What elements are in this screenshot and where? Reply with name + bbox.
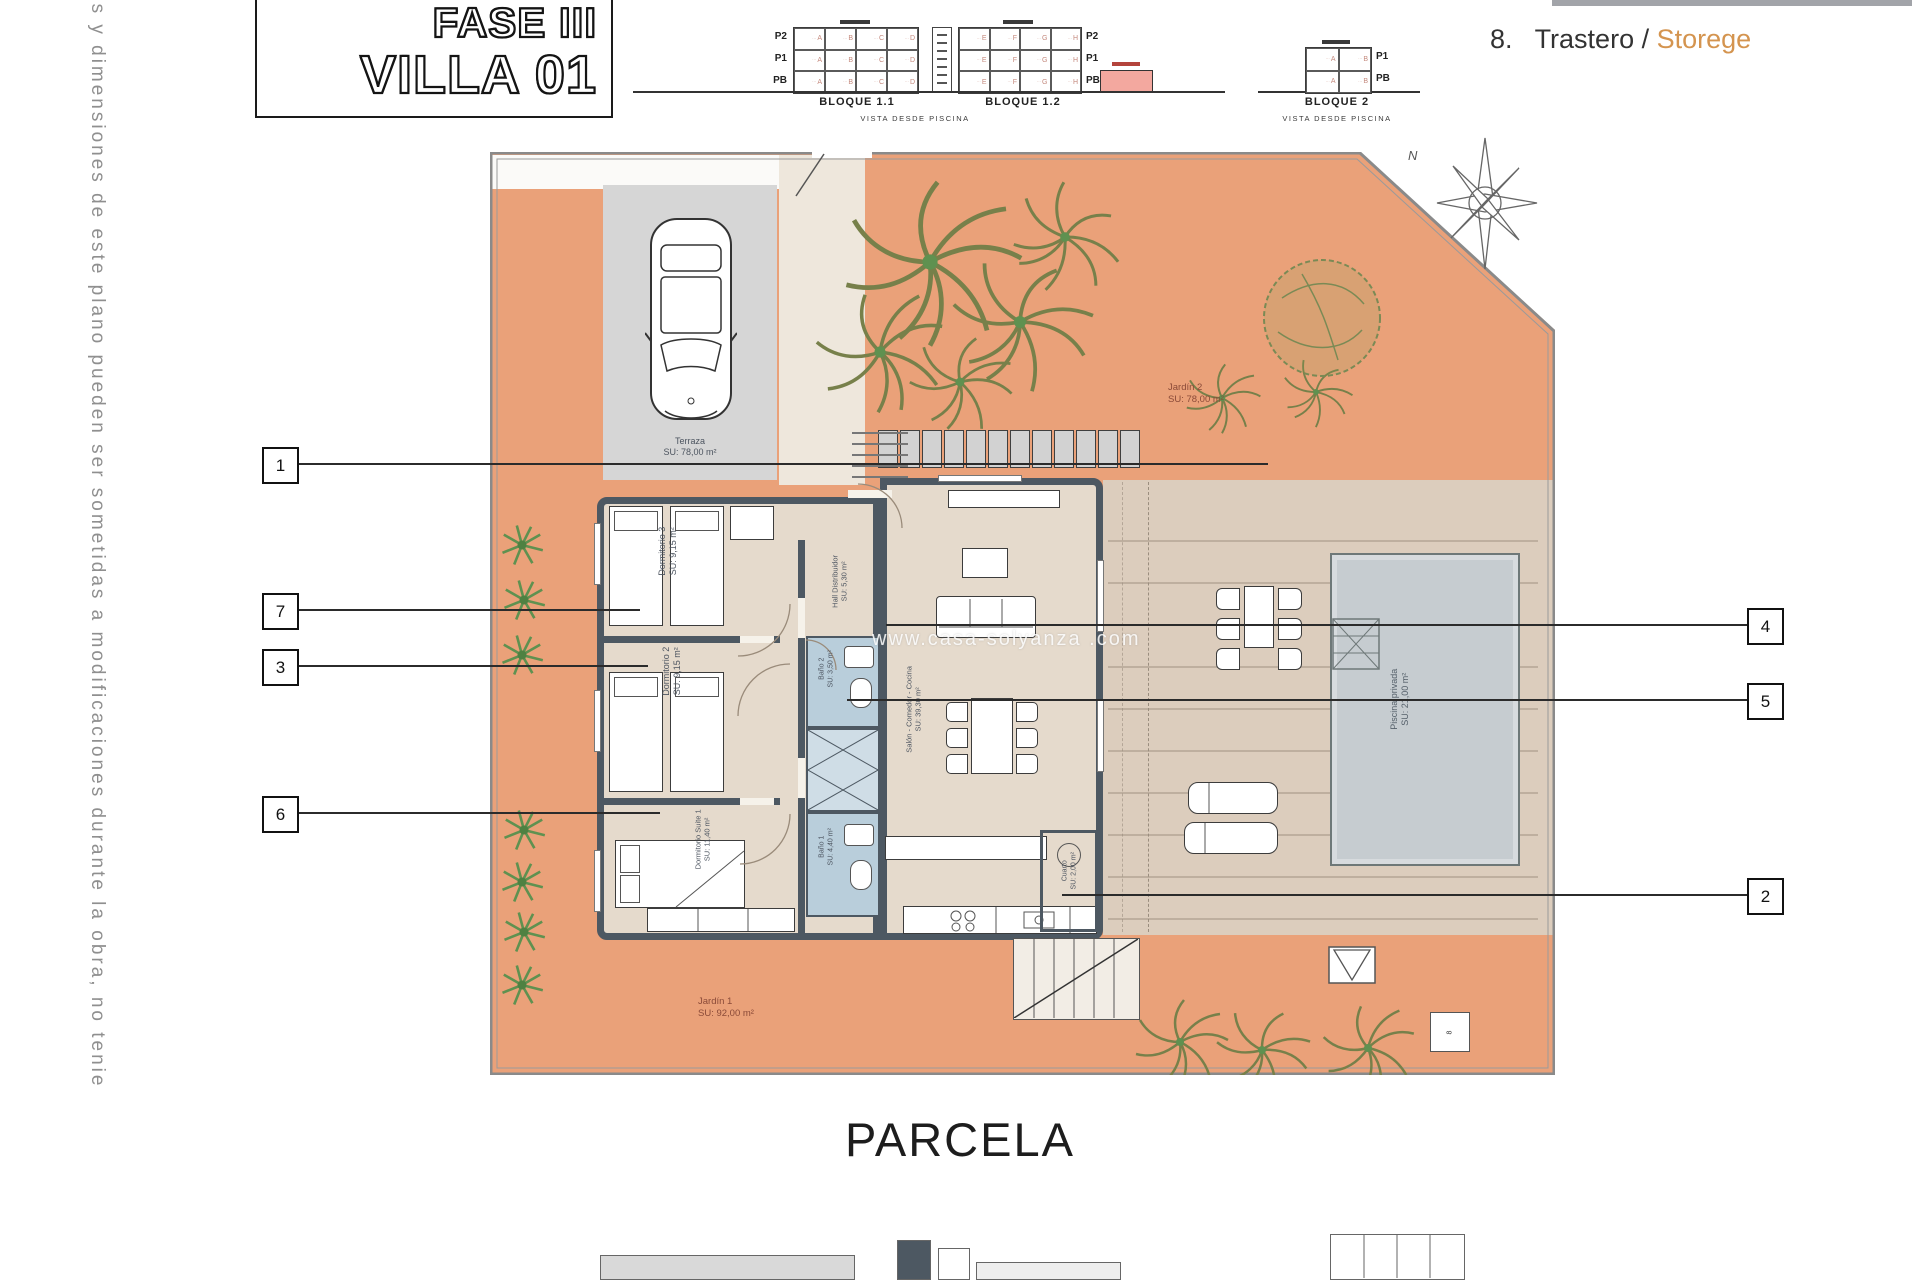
cropped-drawing-fragment bbox=[938, 1248, 970, 1280]
chair bbox=[1278, 648, 1302, 670]
bathroom-1 bbox=[806, 812, 880, 917]
chair bbox=[1278, 618, 1302, 640]
callout-7: 7 bbox=[262, 593, 299, 630]
sun-lounger bbox=[1184, 822, 1278, 854]
legend-name-en: Storege bbox=[1657, 24, 1752, 54]
bloque2-name: BLOQUE 2 bbox=[1287, 96, 1387, 108]
leader-line-5 bbox=[847, 699, 1747, 701]
callout-5: 5 bbox=[1747, 683, 1784, 720]
door-opening bbox=[798, 598, 805, 638]
bloque12-grid: EFGHEFGHEFGH bbox=[958, 27, 1082, 94]
window bbox=[594, 850, 601, 912]
bench-closet bbox=[647, 908, 795, 932]
unit-cell: D bbox=[887, 50, 918, 72]
level-label: PB bbox=[763, 75, 787, 86]
cropped-drawing-fragment bbox=[600, 1255, 855, 1280]
dormitorio2-label: Dormitorio 2SU: 9,15 m² bbox=[661, 616, 684, 726]
callout-4: 4 bbox=[1747, 608, 1784, 645]
shower-symbol bbox=[1328, 946, 1376, 984]
door-opening bbox=[740, 798, 774, 805]
window bbox=[594, 690, 601, 752]
legend-number: 8. bbox=[1490, 24, 1513, 54]
north-compass bbox=[1425, 136, 1545, 271]
window bbox=[1097, 700, 1104, 772]
ground-line bbox=[633, 91, 1225, 93]
bloque12-roof-label bbox=[1003, 20, 1033, 24]
unit-cell: B bbox=[1339, 48, 1372, 71]
parcela-title: PARCELA bbox=[790, 1112, 1130, 1167]
unit-cell: A bbox=[1306, 48, 1339, 71]
unit-cell: A bbox=[794, 71, 825, 93]
bloque11-name: BLOQUE 1.1 bbox=[807, 96, 907, 108]
callout-3: 3 bbox=[262, 649, 299, 686]
jardin1-label: Jardín 1SU: 92,00 m² bbox=[698, 996, 754, 1021]
legend-item-8: 8. Trastero / Storege bbox=[1490, 24, 1751, 55]
unit-cell: F bbox=[990, 28, 1021, 50]
sun-lounger bbox=[1188, 782, 1278, 814]
unit-cell: A bbox=[794, 28, 825, 50]
suite1-label: Dormitorio Suite 1SU: 11,40 m² bbox=[694, 779, 713, 899]
leader-line-1 bbox=[295, 463, 1268, 465]
unit-cell: D bbox=[887, 28, 918, 50]
bathroom-2 bbox=[806, 636, 880, 728]
unit-cell: B bbox=[825, 71, 856, 93]
chair bbox=[1278, 588, 1302, 610]
entry-door-opening bbox=[848, 490, 892, 498]
unit-cell: H bbox=[1051, 28, 1082, 50]
bloque2-caption: VISTA DESDE PISCINA bbox=[1267, 114, 1407, 123]
leader-line-2 bbox=[1062, 894, 1747, 896]
villa-title: VILLA 01 bbox=[257, 48, 597, 102]
watermark: www.casa-solyanza .com bbox=[872, 628, 1141, 651]
level-label: P2 bbox=[1086, 31, 1098, 42]
coffee-table bbox=[962, 548, 1008, 578]
chair bbox=[1216, 648, 1240, 670]
cropped-drawing-fragment bbox=[1330, 1234, 1465, 1280]
unit-cell: G bbox=[1020, 28, 1051, 50]
level-label: PB bbox=[1376, 73, 1390, 84]
entry-steps bbox=[852, 432, 908, 478]
level-label: P2 bbox=[763, 31, 787, 42]
unit-cell: C bbox=[856, 28, 887, 50]
unit-cell: E bbox=[959, 28, 990, 50]
unit-cell: E bbox=[959, 50, 990, 72]
bed bbox=[609, 506, 663, 626]
unit-cell: H bbox=[1051, 50, 1082, 72]
leader-line-6 bbox=[295, 812, 660, 814]
level-label: P1 bbox=[1086, 53, 1098, 64]
window bbox=[938, 475, 1022, 482]
outdoor-table bbox=[1244, 586, 1274, 648]
hall-label: Hall DistribuidorSU: 5,30 m² bbox=[831, 536, 850, 626]
chair bbox=[946, 754, 968, 774]
phase-title: FASE III bbox=[257, 2, 597, 44]
leader-line-3 bbox=[295, 665, 648, 667]
unit-cell: F bbox=[990, 71, 1021, 93]
unit-cell: G bbox=[1020, 50, 1051, 72]
unit-cell: B bbox=[1339, 71, 1372, 94]
unit-cell: A bbox=[1306, 71, 1339, 94]
floor-plan-sheet: es y dimensiones de este plano pueden se… bbox=[0, 0, 1920, 1280]
wardrobe bbox=[730, 506, 774, 540]
stair-core bbox=[932, 27, 952, 92]
unit-cell: F bbox=[990, 50, 1021, 72]
bano1-label: Baño 1SU: 4,40 m² bbox=[818, 817, 836, 877]
cropped-header-bar bbox=[1552, 0, 1912, 6]
garden-stairs bbox=[1013, 938, 1140, 1020]
level-label: P1 bbox=[763, 53, 787, 64]
bloque12-name: BLOQUE 1.2 bbox=[973, 96, 1073, 108]
chair bbox=[1016, 728, 1038, 748]
jardin2-label: Jardín 2SU: 78,00 m² bbox=[1168, 382, 1224, 407]
unit-cell: C bbox=[856, 71, 887, 93]
callout-6: 6 bbox=[262, 796, 299, 833]
unit-cell: C bbox=[856, 50, 887, 72]
chair bbox=[1216, 618, 1240, 640]
level-label: PB bbox=[1086, 75, 1100, 86]
bano2-label: Baño 2SU: 3,50 m² bbox=[818, 639, 836, 699]
bloque2-roof-label bbox=[1322, 40, 1350, 44]
door-opening bbox=[798, 758, 805, 798]
highlighted-villa-cell bbox=[1100, 70, 1153, 92]
sideboard bbox=[948, 490, 1060, 508]
dining-table bbox=[971, 698, 1013, 774]
salon-label: Salón - Comedor - CocinaSU: 39,30 m² bbox=[905, 634, 924, 784]
bloque2-grid: ABAB bbox=[1305, 47, 1372, 94]
bloque1-caption: VISTA DESDE PISCINA bbox=[845, 114, 985, 123]
double-bed bbox=[615, 840, 745, 908]
leader-line-7 bbox=[295, 609, 640, 611]
storage-marker: 8 bbox=[1430, 1012, 1470, 1052]
unit-cell: A bbox=[794, 50, 825, 72]
north-label: N bbox=[1408, 148, 1417, 163]
bloque11-roof-label bbox=[840, 20, 870, 24]
unit-cell: E bbox=[959, 71, 990, 93]
cuarto-label: CuartoSU: 2,00 m² bbox=[1061, 841, 1079, 901]
legend-name-es: Trastero bbox=[1535, 24, 1635, 54]
kitchen-island bbox=[885, 836, 1047, 860]
unit-cell: G bbox=[1020, 71, 1051, 93]
chair bbox=[1016, 702, 1038, 722]
door-opening bbox=[740, 636, 774, 643]
wardrobe bbox=[806, 728, 880, 812]
margin-disclaimer-text: es y dimensiones de este plano pueden se… bbox=[86, 0, 108, 1280]
terrace-label: TerrazaSU: 78,00 m² bbox=[640, 436, 740, 459]
unit-cell: D bbox=[887, 71, 918, 93]
dormitorio3-label: Dormitorio 3SU: 9,15 m² bbox=[657, 496, 680, 606]
chair bbox=[946, 702, 968, 722]
callout-2: 2 bbox=[1747, 878, 1784, 915]
highlight-label-bar bbox=[1112, 62, 1140, 66]
unit-cell: H bbox=[1051, 71, 1082, 93]
level-label: P1 bbox=[1376, 51, 1388, 62]
title-block: FASE III VILLA 01 bbox=[255, 0, 613, 118]
chair bbox=[946, 728, 968, 748]
bloque11-grid: ABCDABCDABCD bbox=[793, 27, 919, 94]
cropped-drawing-fragment bbox=[897, 1240, 931, 1280]
callout-1: 1 bbox=[262, 447, 299, 484]
chair bbox=[1016, 754, 1038, 774]
bed bbox=[609, 672, 663, 792]
window bbox=[594, 523, 601, 585]
chair bbox=[1216, 588, 1240, 610]
leader-line-4 bbox=[886, 624, 1747, 626]
window bbox=[1097, 560, 1104, 632]
unit-cell: B bbox=[825, 28, 856, 50]
cropped-drawing-fragment bbox=[976, 1262, 1121, 1280]
car-top-view bbox=[645, 215, 737, 423]
unit-cell: B bbox=[825, 50, 856, 72]
